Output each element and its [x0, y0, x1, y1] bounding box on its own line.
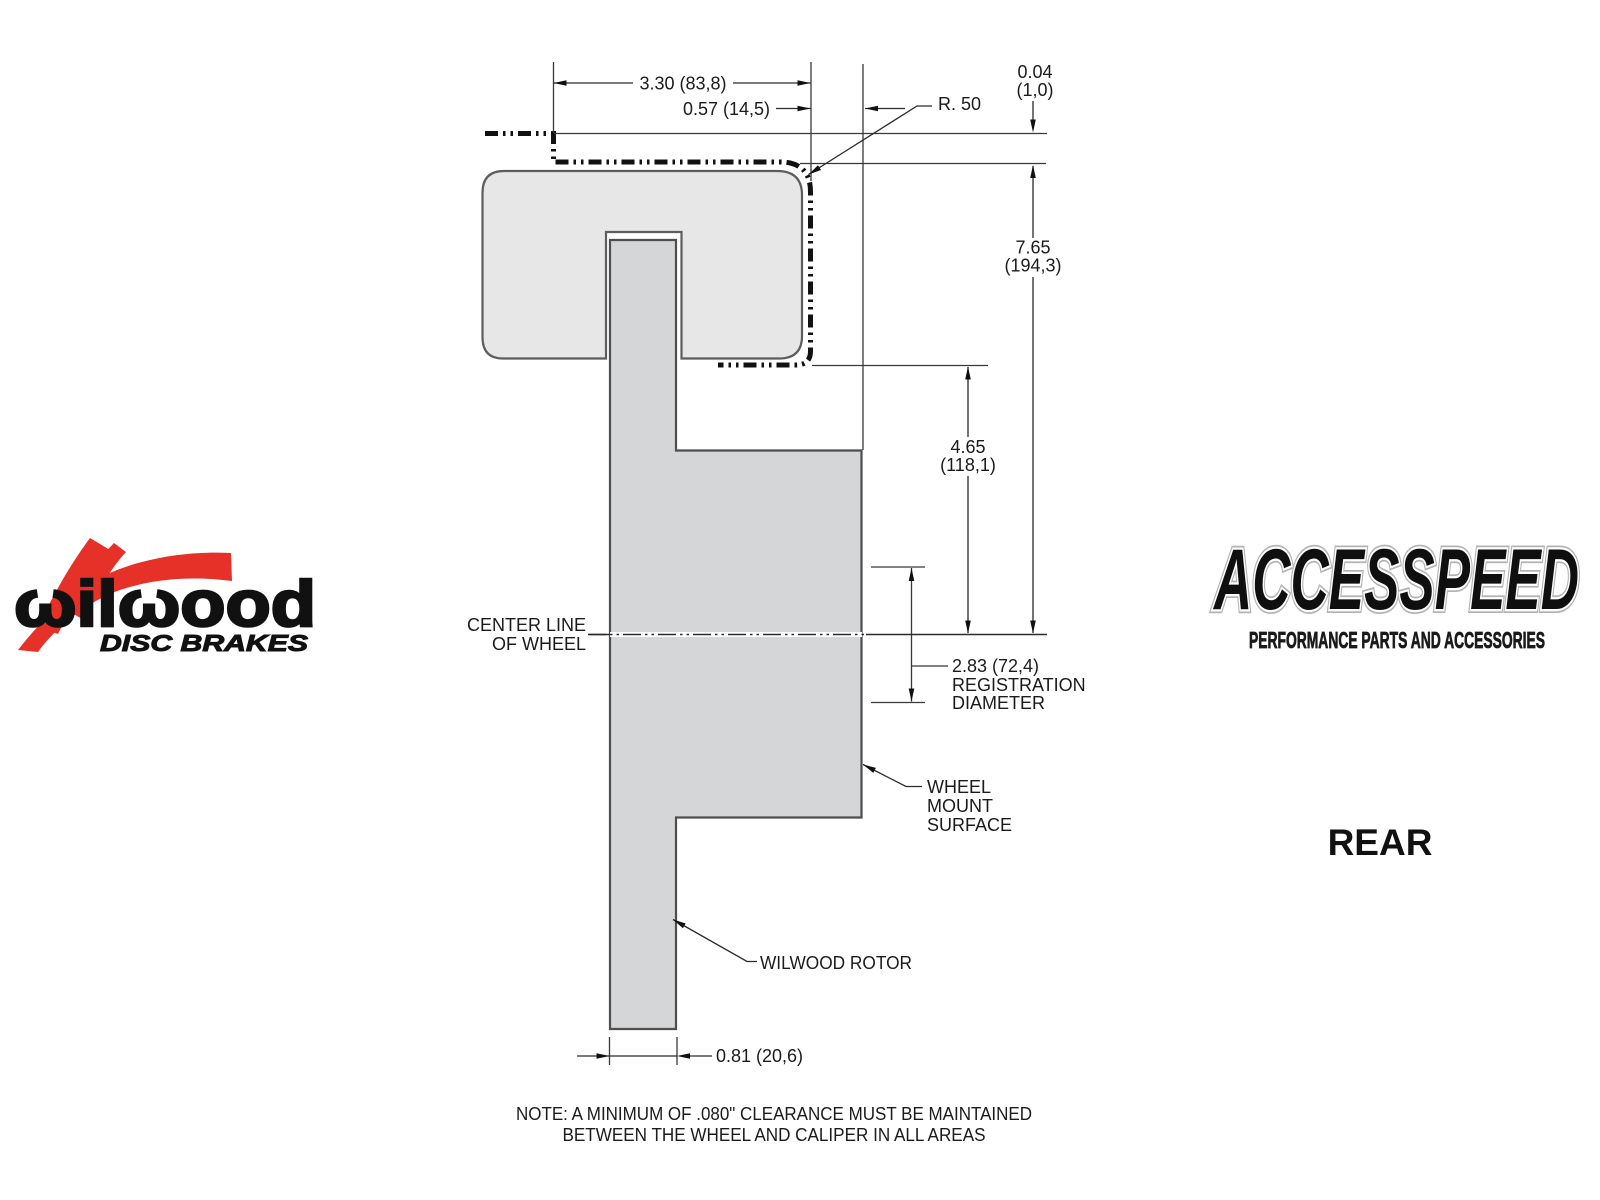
svg-text:DIAMETER: DIAMETER — [952, 693, 1045, 713]
svg-text:MOUNT: MOUNT — [927, 796, 993, 816]
svg-text:0.81 (20,6): 0.81 (20,6) — [716, 1046, 803, 1066]
svg-text:WILWOOD ROTOR: WILWOOD ROTOR — [760, 953, 912, 973]
svg-text:(194,3): (194,3) — [1004, 256, 1061, 276]
svg-text:REAR: REAR — [1328, 822, 1433, 863]
svg-text:REGISTRATION: REGISTRATION — [952, 675, 1086, 695]
svg-text:7.65: 7.65 — [1015, 238, 1050, 258]
svg-text:ACCESSPEED: ACCESSPEED — [1213, 532, 1579, 628]
svg-text:OF WHEEL: OF WHEEL — [492, 634, 586, 654]
svg-text:NOTE: A MINIMUM OF .080" CLEAR: NOTE: A MINIMUM OF .080" CLEARANCE MUST … — [516, 1104, 1032, 1124]
svg-text:(1,0): (1,0) — [1016, 80, 1053, 100]
svg-text:0.04: 0.04 — [1017, 62, 1052, 82]
svg-text:(118,1): (118,1) — [940, 455, 996, 475]
svg-text:BETWEEN THE WHEEL AND CALIPER: BETWEEN THE WHEEL AND CALIPER IN ALL ARE… — [563, 1125, 986, 1145]
svg-text:0.57 (14,5): 0.57 (14,5) — [683, 99, 770, 119]
svg-text:SURFACE: SURFACE — [927, 815, 1012, 835]
svg-text:WHEEL: WHEEL — [927, 777, 991, 797]
svg-text:3.30 (83,8): 3.30 (83,8) — [639, 74, 726, 94]
svg-text:2.83 (72,4): 2.83 (72,4) — [952, 656, 1039, 676]
svg-text:R. 50: R. 50 — [938, 94, 981, 114]
svg-text:PERFORMANCE PARTS AND ACCESSOR: PERFORMANCE PARTS AND ACCESSORIES — [1249, 627, 1545, 653]
svg-text:DISC BRAKES: DISC BRAKES — [100, 630, 309, 656]
svg-text:CENTER LINE: CENTER LINE — [467, 615, 586, 635]
svg-text:4.65: 4.65 — [950, 437, 985, 457]
